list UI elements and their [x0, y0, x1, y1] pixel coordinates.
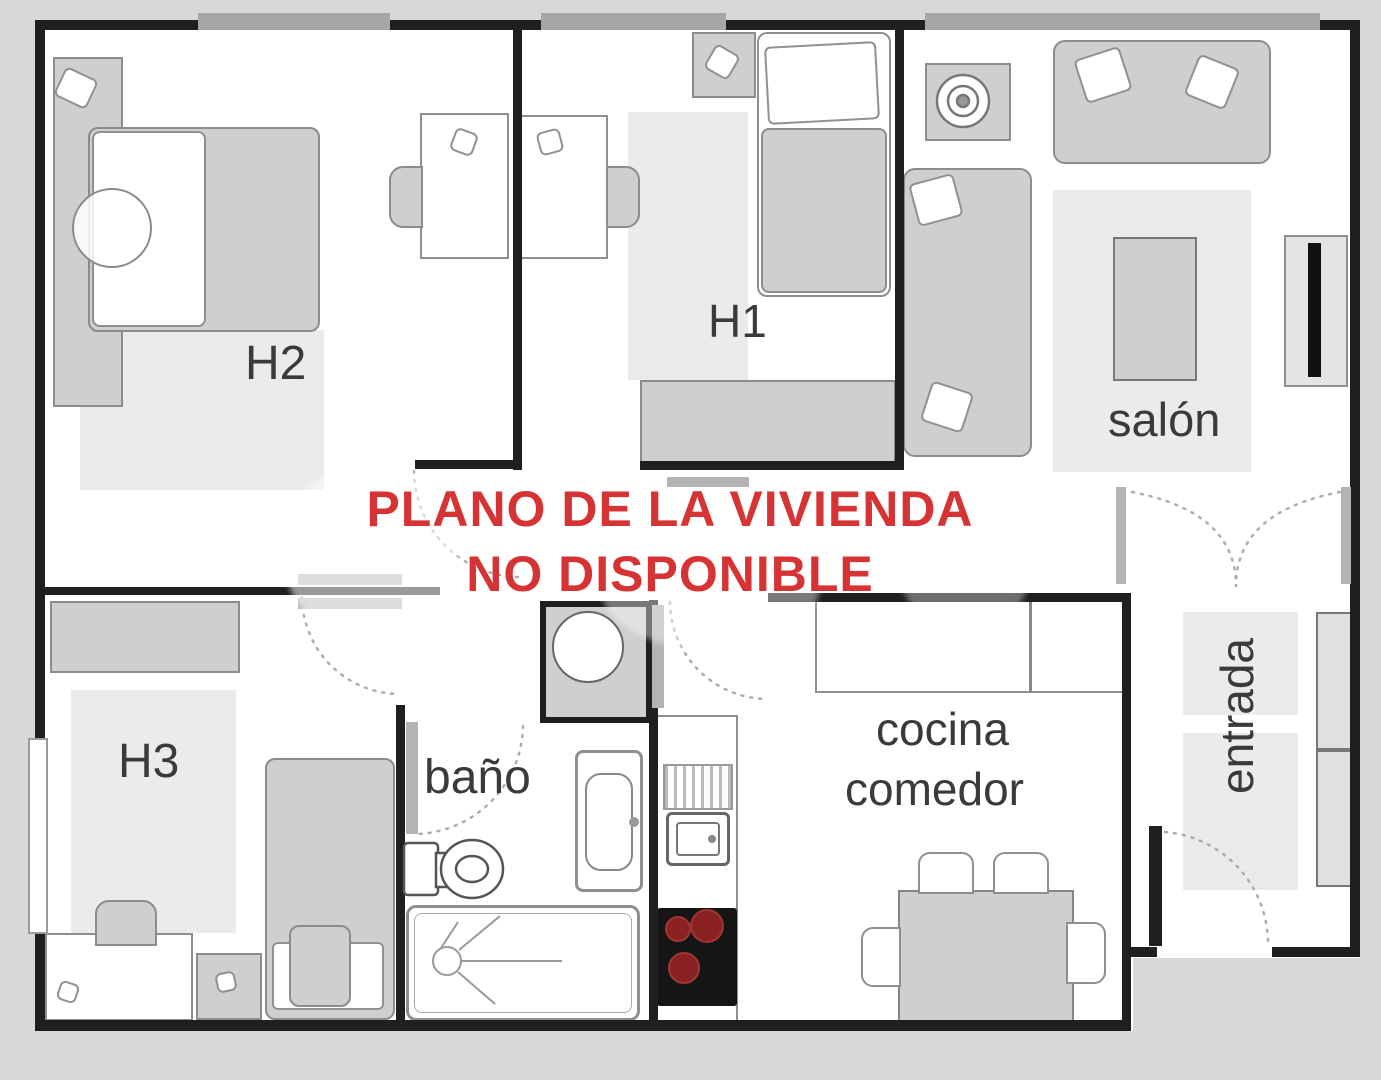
room-label-h2: H2 [245, 340, 306, 388]
room-label-bano: baño [424, 754, 531, 802]
double-door-arc-right [1236, 492, 1340, 586]
kitchen-sink-faucet [708, 835, 716, 843]
plant-icon [937, 75, 989, 127]
watermark-text-line1: PLANO DE LA VIVIENDA [100, 484, 1240, 534]
shower-drain-icon [433, 916, 562, 1004]
watermark-text-line2: NO DISPONIBLE [100, 549, 1240, 599]
room-label-entrada: entrada [1214, 638, 1260, 794]
bath-sink-faucet [629, 817, 639, 827]
room-label-cocina: cocina [876, 706, 1009, 752]
toilet-icon [404, 840, 503, 898]
room-label-comedor: comedor [845, 766, 1024, 812]
room-label-h3: H3 [118, 738, 179, 786]
floor-plan: H2 H1 H3 salón baño cocina comedor entra… [0, 0, 1381, 1080]
front-door-arc [1165, 832, 1268, 943]
room-label-h1: H1 [708, 298, 767, 344]
h2-chair-circle-icon [73, 189, 151, 267]
hob-burner-icons [666, 910, 723, 983]
room-label-salon: salón [1108, 396, 1220, 443]
